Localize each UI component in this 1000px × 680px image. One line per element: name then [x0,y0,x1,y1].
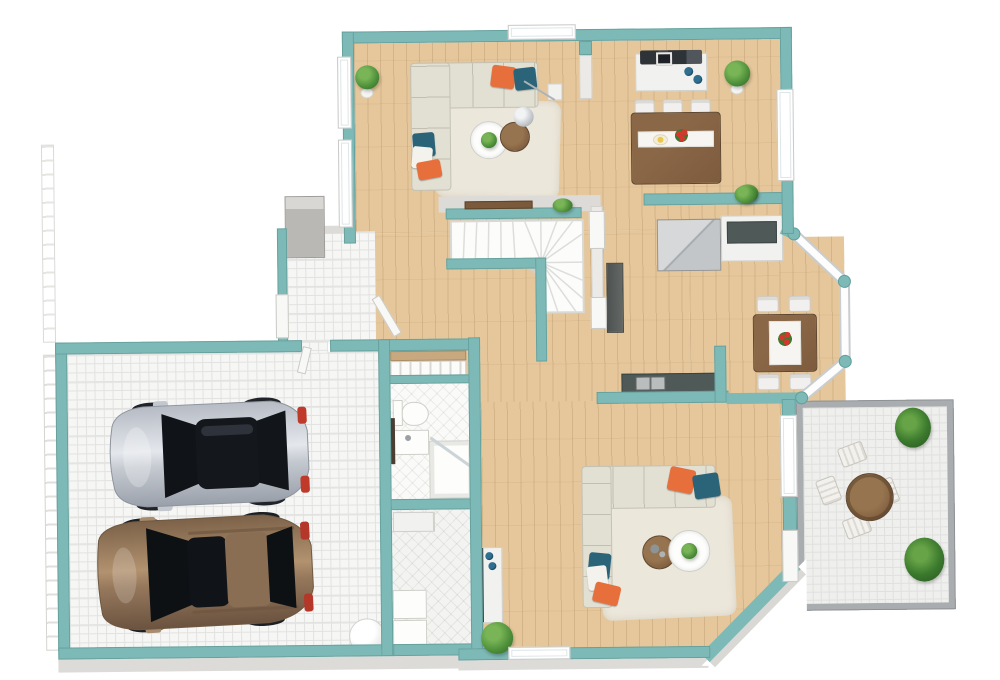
west-window-1 [337,57,352,129]
bath-laundry-wall [380,498,480,510]
toilet-bowl [402,402,429,426]
east-window [776,89,794,181]
shower-tray [429,440,474,498]
stair-side-wall [535,258,547,362]
double-sink [635,376,665,390]
laundry-cabinet [393,512,435,532]
blue-vase [485,552,493,560]
dinner-plate [653,134,668,145]
candle [659,551,665,557]
living-dining-partition [579,55,592,99]
stair-lower-wall [446,258,546,270]
patio-table [845,473,894,522]
corridor-lower-door [591,297,607,329]
blue-vase [488,562,496,570]
wall-shelf-wood [465,201,533,210]
stone-chimney-column [285,196,326,258]
family-south-window [508,646,570,660]
corridor-closet-door [589,211,605,249]
vanity-sink [393,430,429,455]
family-east-window [780,415,798,497]
flower-centerpiece [674,128,689,143]
partition-cap [579,41,592,55]
living-potted-plant [355,65,379,89]
closet-divider-wall [388,374,470,384]
candle [650,544,659,553]
washer [393,590,427,619]
dining-table [631,112,722,185]
west-window-2 [338,140,353,228]
blue-vase [684,67,693,76]
teal-pillow [692,472,721,500]
side-fence-panels [41,145,56,343]
silver-sedan [99,394,316,514]
orange-pillow [490,64,517,89]
floor-plan-canvas [0,0,1000,680]
front-door [276,294,289,338]
dining-potted-plant [724,60,750,86]
picture-frame [656,52,672,65]
garage-north-wall-2 [330,338,480,352]
patio-planter-south [904,537,944,581]
faucet [405,435,411,441]
floor-lamp-base [514,107,534,127]
table-plant [481,132,497,148]
brown-suv [87,507,321,637]
north-window [508,24,576,40]
blue-vase [693,75,702,84]
tall-dark-cabinet [606,263,624,333]
patio-planter-north [895,407,931,447]
patio-door [782,530,799,582]
